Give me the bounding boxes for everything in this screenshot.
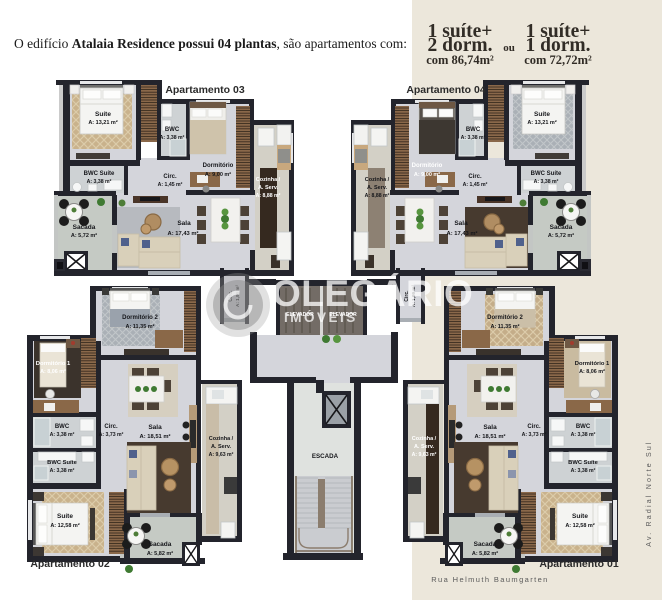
svg-text:A: 9,63 m²: A: 9,63 m² (412, 452, 437, 458)
svg-text:A: 3,38 m²: A: 3,38 m² (50, 468, 75, 474)
svg-text:Apartamento 03: Apartamento 03 (165, 84, 245, 96)
svg-text:Apartamento 04: Apartamento 04 (406, 84, 486, 96)
svg-text:A: 9,00 m²: A: 9,00 m² (414, 171, 440, 178)
svg-text:Sala: Sala (148, 424, 162, 431)
svg-text:A: 3,73 m²: A: 3,73 m² (99, 432, 124, 438)
svg-text:Circ.: Circ. (468, 174, 482, 180)
svg-text:Cozinha /: Cozinha / (365, 177, 390, 183)
svg-text:A: 13,21 m²: A: 13,21 m² (527, 119, 557, 126)
svg-text:BWC: BWC (55, 424, 70, 430)
svg-text:A: 12,58 m²: A: 12,58 m² (565, 522, 595, 529)
svg-text:Circ.: Circ. (163, 174, 177, 180)
svg-text:Suíte: Suíte (57, 513, 73, 520)
svg-text:A: 8,88 m²: A: 8,88 m² (365, 193, 390, 199)
svg-text:Cozinha /: Cozinha / (256, 177, 281, 183)
svg-text:Cozinha /: Cozinha / (412, 436, 437, 442)
svg-text:BWC Suíte: BWC Suíte (84, 171, 115, 177)
svg-text:Sala: Sala (454, 220, 468, 227)
svg-text:BWC Suíte: BWC Suíte (531, 171, 562, 177)
svg-text:Circ.: Circ. (527, 424, 541, 430)
svg-text:Sacada: Sacada (149, 541, 172, 548)
svg-text:Dormitório: Dormitório (203, 163, 234, 169)
svg-text:A: 18,51 m²: A: 18,51 m² (140, 433, 171, 440)
svg-text:A: 11,35 m²: A: 11,35 m² (125, 323, 154, 330)
svg-text:A: 11,35 m²: A: 11,35 m² (490, 323, 519, 330)
svg-text:A: 3,38 m²: A: 3,38 m² (571, 468, 596, 474)
svg-text:A: 3,38 m²: A: 3,38 m² (50, 432, 75, 438)
svg-text:Dormitório 2: Dormitório 2 (487, 315, 523, 321)
svg-text:BWC Suíte: BWC Suíte (47, 460, 77, 466)
svg-text:Suíte: Suíte (572, 513, 588, 520)
svg-text:A: 3,38 m²: A: 3,38 m² (571, 432, 596, 438)
svg-text:A. Serv.: A. Serv. (414, 444, 435, 450)
svg-text:BWC: BWC (466, 127, 481, 133)
svg-text:A: 8,88 m²: A: 8,88 m² (256, 193, 281, 199)
svg-text:A: 8,06 m²: A: 8,06 m² (579, 369, 605, 375)
svg-text:A: 5,72 m²: A: 5,72 m² (71, 232, 97, 239)
svg-text:A: 9,00 m²: A: 9,00 m² (205, 171, 231, 178)
svg-text:A: 1,45 m²: A: 1,45 m² (463, 182, 488, 188)
svg-text:Cozinha /: Cozinha / (209, 436, 234, 442)
svg-text:A: 3,38 m²: A: 3,38 m² (534, 179, 559, 185)
svg-text:A: 18,51 m²: A: 18,51 m² (475, 433, 506, 440)
svg-text:BWC: BWC (576, 424, 591, 430)
svg-text:A: 1,45 m²: A: 1,45 m² (158, 182, 183, 188)
svg-text:OLEGÁRIO: OLEGÁRIO (272, 273, 473, 314)
svg-text:Dormitório: Dormitório (412, 163, 443, 169)
svg-text:A. Serv.: A. Serv. (211, 444, 232, 450)
svg-text:Circ.: Circ. (104, 424, 118, 430)
svg-text:Sala: Sala (483, 424, 497, 431)
svg-text:Sacada: Sacada (474, 541, 497, 548)
svg-text:A: 5,82 m²: A: 5,82 m² (472, 550, 498, 557)
svg-text:Sacada: Sacada (73, 224, 96, 231)
svg-text:Dormitório 1: Dormitório 1 (575, 361, 610, 367)
svg-text:Sala: Sala (177, 220, 191, 227)
svg-text:A: 9,63 m²: A: 9,63 m² (209, 452, 234, 458)
svg-text:A: 8,06 m²: A: 8,06 m² (40, 369, 66, 375)
svg-text:IMÓVEIS: IMÓVEIS (284, 310, 358, 325)
svg-text:Suíte: Suíte (534, 111, 550, 118)
svg-text:ESCADA: ESCADA (312, 453, 339, 460)
svg-text:A: 3,38 m²: A: 3,38 m² (160, 135, 185, 141)
svg-text:Apartamento 02: Apartamento 02 (30, 558, 110, 570)
svg-text:BWC: BWC (165, 127, 180, 133)
svg-text:A. Serv.: A. Serv. (258, 185, 279, 191)
svg-text:Suíte: Suíte (95, 111, 111, 118)
svg-text:A: 3,38 m²: A: 3,38 m² (461, 135, 486, 141)
svg-text:Apartamento 01: Apartamento 01 (539, 558, 619, 570)
svg-text:A: 3,38 m²: A: 3,38 m² (87, 179, 112, 185)
svg-text:A. Serv.: A. Serv. (367, 185, 388, 191)
svg-text:BWC Suíte: BWC Suíte (568, 460, 598, 466)
svg-text:A: 13,21 m²: A: 13,21 m² (88, 119, 118, 126)
svg-text:A: 17,43 m²: A: 17,43 m² (168, 230, 199, 237)
svg-text:Dormitório 2: Dormitório 2 (122, 315, 158, 321)
svg-text:A: 12,58 m²: A: 12,58 m² (50, 522, 80, 529)
svg-text:A: 17,43 m²: A: 17,43 m² (447, 230, 478, 237)
svg-text:A: 3,73 m²: A: 3,73 m² (522, 432, 547, 438)
svg-text:A: 5,82 m²: A: 5,82 m² (147, 550, 173, 557)
svg-text:Dormitório 1: Dormitório 1 (36, 361, 71, 367)
svg-text:A: 5,72 m²: A: 5,72 m² (548, 232, 574, 239)
svg-text:Sacada: Sacada (550, 224, 573, 231)
